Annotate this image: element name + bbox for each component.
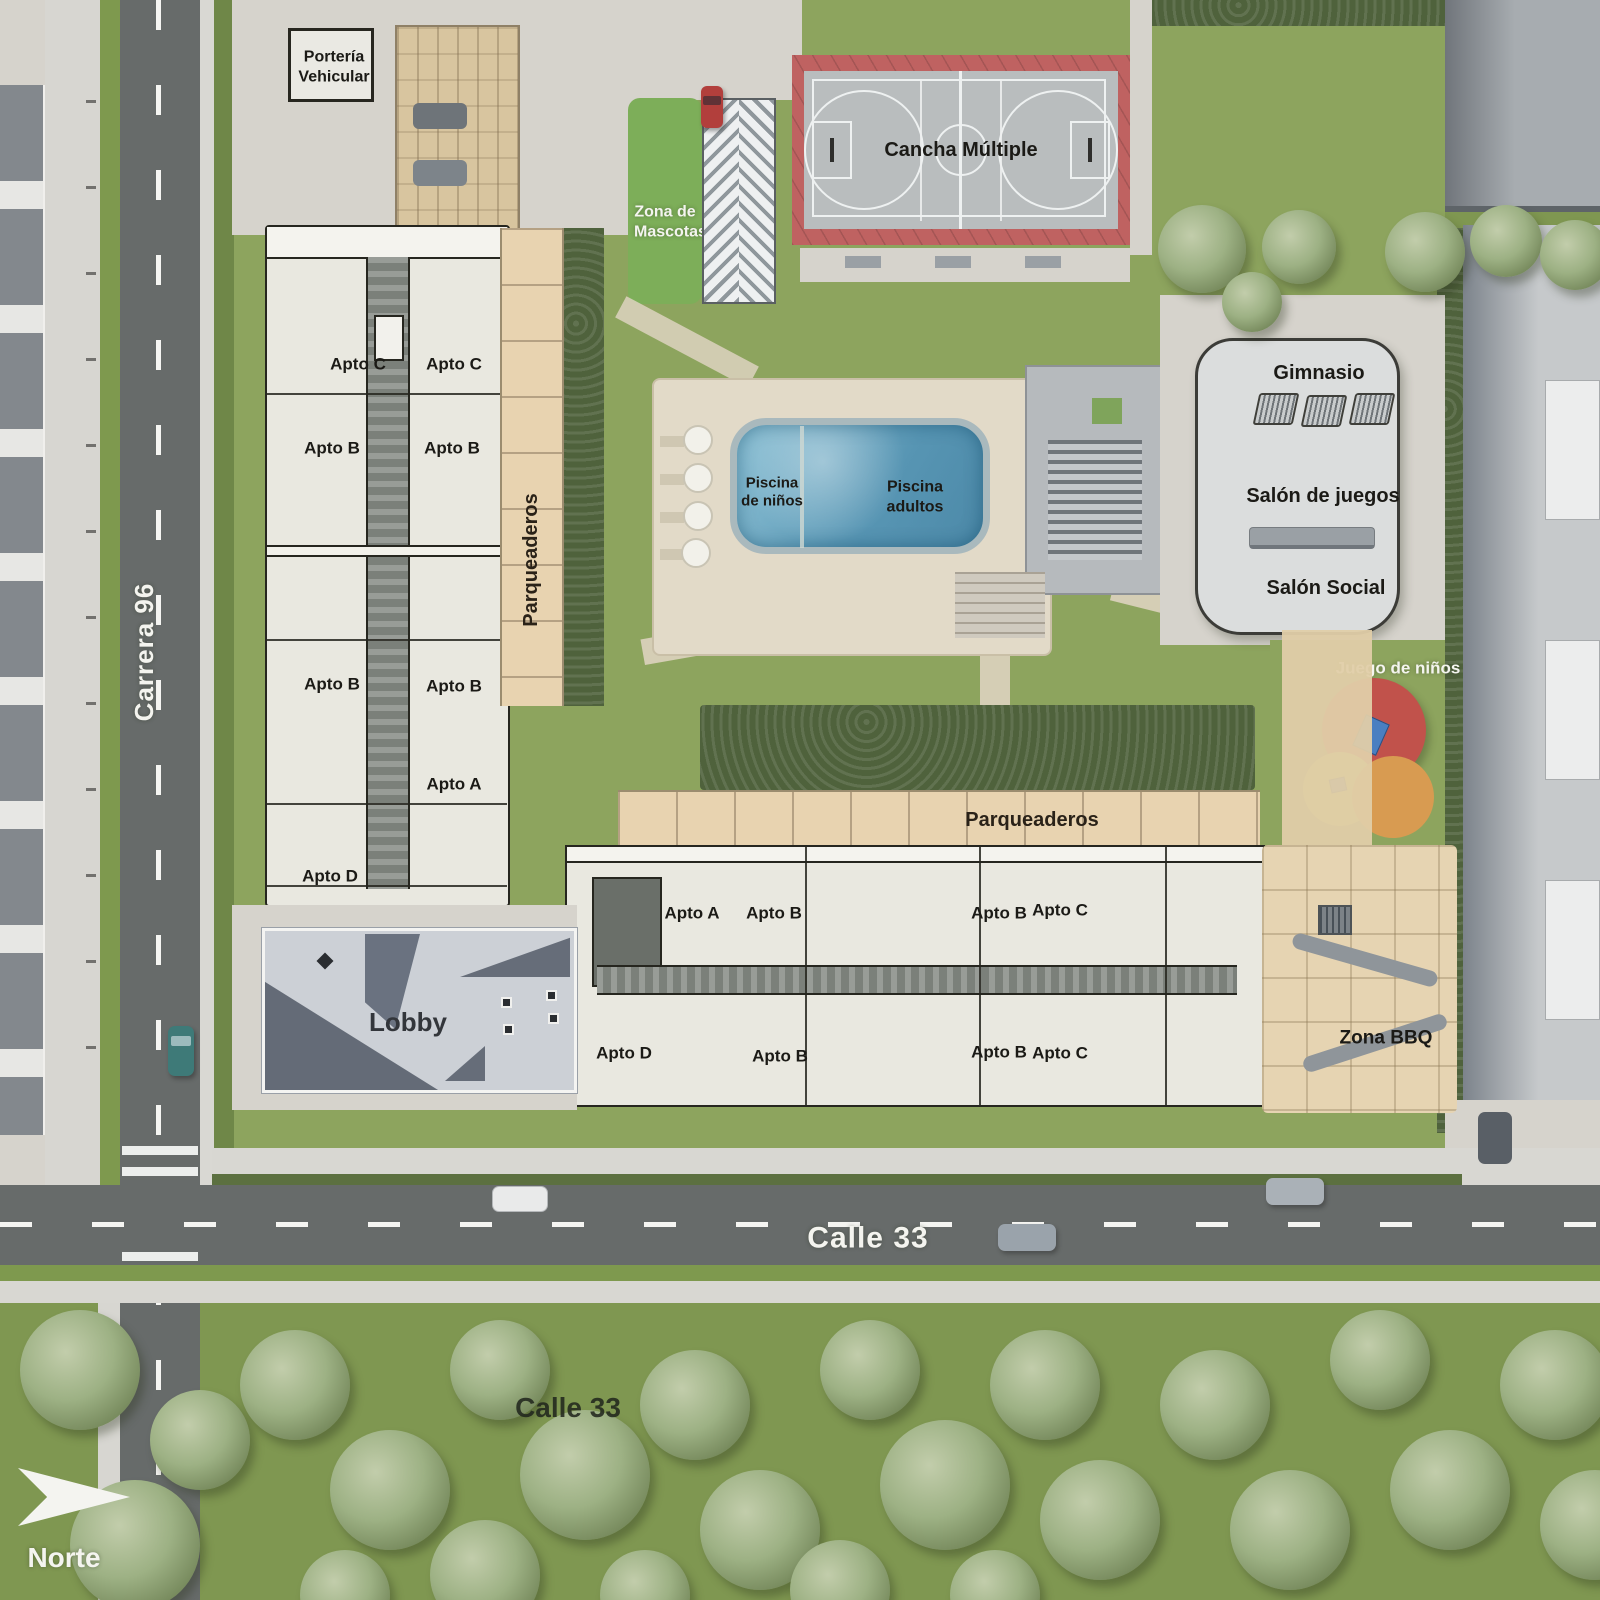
tower-north-line-2	[267, 639, 507, 641]
east-building-module-3	[1545, 880, 1600, 1020]
tree	[150, 1390, 250, 1490]
pool-stairs	[955, 572, 1045, 638]
tower-south-divider-2	[979, 847, 981, 1105]
tree	[1390, 1430, 1510, 1550]
driveway-pavement	[672, 0, 802, 100]
calle-33-south-verge	[0, 1265, 1600, 1281]
garage-car-1	[413, 103, 467, 129]
car-red-windshield	[703, 96, 721, 105]
parking-south-strip	[618, 790, 1260, 848]
gym-building: Gimnasio Salón de juegos Salón Social	[1195, 338, 1400, 635]
unit-label: Apto A	[664, 904, 719, 925]
parking-south-label: Parqueaderos	[965, 808, 1098, 832]
pool-adults-label: Piscina adultos	[868, 477, 963, 516]
court-label: Cancha Múltiple	[884, 138, 1037, 162]
umbrella-4	[681, 538, 711, 568]
car-teal	[168, 1026, 194, 1076]
social-room-label: Salón Social	[1267, 576, 1386, 600]
unit-label: Apto B	[424, 439, 480, 460]
west-verge	[100, 0, 120, 1300]
unit-label: Apto B	[304, 439, 360, 460]
hedge-south-strip	[700, 705, 1255, 790]
pool-kids-label: Piscina de niños	[739, 475, 805, 512]
east-pavement-south	[1445, 1100, 1600, 1148]
tree	[1160, 1350, 1270, 1460]
tower-north: Apto C Apto C Apto B Apto B Apto B Apto …	[265, 225, 510, 907]
bbq-label: Zona BBQ	[1340, 1026, 1433, 1049]
pet-zone-label: Zona de Mascotas	[634, 202, 696, 241]
unit-label: Apto B	[426, 677, 482, 698]
car-white	[492, 1186, 548, 1212]
lobby-skylight-3	[548, 1013, 559, 1024]
bench-2	[935, 256, 971, 268]
gym-label: Gimnasio	[1273, 361, 1364, 385]
chevron-ramp	[702, 98, 776, 304]
tree	[820, 1320, 920, 1420]
car-red	[701, 86, 723, 128]
tower-south-divider-3	[1165, 847, 1167, 1105]
chevron-left-half	[704, 100, 739, 302]
parking-west-label: Parqueaderos	[519, 493, 543, 626]
lobby-skylight-1	[501, 997, 512, 1008]
lobby-label: Lobby	[369, 1007, 447, 1039]
tree	[1222, 272, 1282, 332]
unit-label: Apto B	[746, 904, 802, 925]
umbrella-1	[683, 425, 713, 455]
tree	[990, 1330, 1100, 1440]
lounger-3	[660, 512, 684, 523]
games-table	[1249, 527, 1375, 549]
games-room-label: Salón de juegos	[1246, 484, 1399, 508]
tree	[1385, 212, 1465, 292]
unit-label: Apto C	[1032, 1044, 1088, 1065]
west-balcony-ticks	[86, 100, 96, 1130]
gatehouse-label: Portería Vehicular	[294, 47, 374, 86]
bbq-grill	[1318, 905, 1352, 935]
car-dark	[1478, 1112, 1512, 1164]
bbq-path-north	[1282, 630, 1372, 845]
lobby-roof-triangle-right	[460, 937, 570, 977]
chevron-right-half	[739, 100, 774, 302]
lobby-skylight-4	[503, 1024, 514, 1035]
tree	[20, 1310, 140, 1430]
unit-label: Apto A	[426, 775, 481, 796]
tree	[880, 1420, 1010, 1550]
east-verge	[214, 0, 234, 1185]
site-plan: Portería Vehicular Zona de Mascotas Canc…	[0, 0, 1600, 1600]
east-curb	[200, 0, 214, 1185]
tree	[330, 1430, 450, 1550]
calle-33-south-label: Calle 33	[515, 1391, 621, 1425]
lounger-1	[660, 436, 684, 447]
tower-south-corridor	[597, 965, 1237, 995]
tower-north-line-3	[267, 803, 507, 805]
northeast-building	[1445, 0, 1600, 212]
calle-33-center-dash	[0, 1222, 1600, 1227]
lobby-roof-triangle-small	[445, 1046, 485, 1081]
tower-south: Apto A Apto B Apto B Apto C Apto D Apto …	[565, 845, 1265, 1107]
tree	[1500, 1330, 1600, 1440]
umbrella-2	[683, 463, 713, 493]
rowhouse-roofs-west	[0, 85, 45, 1135]
pool-house-planter	[1092, 398, 1122, 424]
lobby-roof-diamond	[317, 953, 334, 970]
north-label: Norte	[27, 1541, 100, 1575]
top-hedge-east	[1150, 0, 1445, 26]
tree	[640, 1350, 750, 1460]
court-east-path	[1130, 0, 1152, 255]
hoop-left	[830, 138, 834, 162]
car-silver-2	[1266, 1178, 1324, 1205]
gatehouse-box: Portería Vehicular	[288, 28, 374, 102]
court-surface: Cancha Múltiple	[804, 71, 1118, 229]
unit-label: Apto D	[302, 867, 358, 888]
skylight-icon	[1253, 393, 1300, 425]
unit-label: Apto C	[330, 355, 386, 376]
tree	[1262, 210, 1336, 284]
unit-label: Apto B	[304, 675, 360, 696]
parking-west-strip	[500, 228, 564, 706]
carrera-96-label: Carrera 96	[129, 583, 161, 722]
umbrella-3	[683, 501, 713, 531]
lobby-building: Lobby	[262, 928, 577, 1093]
tower-south-roof-cap	[567, 847, 1262, 863]
carrera-96-center-dash	[156, 0, 161, 1600]
car-teal-windshield	[171, 1036, 191, 1046]
unit-label: Apto C	[1032, 901, 1088, 922]
unit-label: Apto B	[971, 1043, 1027, 1064]
skylight-icon	[1349, 393, 1396, 425]
unit-label: Apto B	[752, 1047, 808, 1068]
calle-33-south-sidewalk	[0, 1281, 1600, 1303]
car-silver-1	[998, 1224, 1056, 1251]
garage-car-2	[413, 160, 467, 186]
bench-1	[845, 256, 881, 268]
unit-label: Apto B	[971, 904, 1027, 925]
crosswalk-north	[122, 1146, 198, 1188]
calle-33-label: Calle 33	[807, 1221, 928, 1258]
hoop-right	[1088, 138, 1092, 162]
east-building-module-2	[1545, 640, 1600, 780]
pergola-slats	[1048, 440, 1142, 560]
skylight-icon	[1301, 395, 1348, 427]
tower-north-roof-cap	[267, 227, 507, 259]
tree	[240, 1330, 350, 1440]
tree	[520, 1410, 650, 1540]
bench-3	[1025, 256, 1061, 268]
tree	[1470, 205, 1542, 277]
hedge-west-strip	[564, 228, 604, 706]
tree	[1230, 1470, 1350, 1590]
east-building-module-1	[1545, 380, 1600, 520]
tree	[1040, 1460, 1160, 1580]
tower-north-line-1	[267, 393, 507, 395]
tower-north-joint-band	[267, 545, 507, 557]
unit-label: Apto D	[596, 1044, 652, 1065]
lobby-skylight-2	[546, 990, 557, 1001]
tree	[1330, 1310, 1430, 1410]
pet-zone: Zona de Mascotas	[628, 98, 702, 304]
lounger-2	[660, 474, 684, 485]
unit-label: Apto C	[426, 355, 482, 376]
